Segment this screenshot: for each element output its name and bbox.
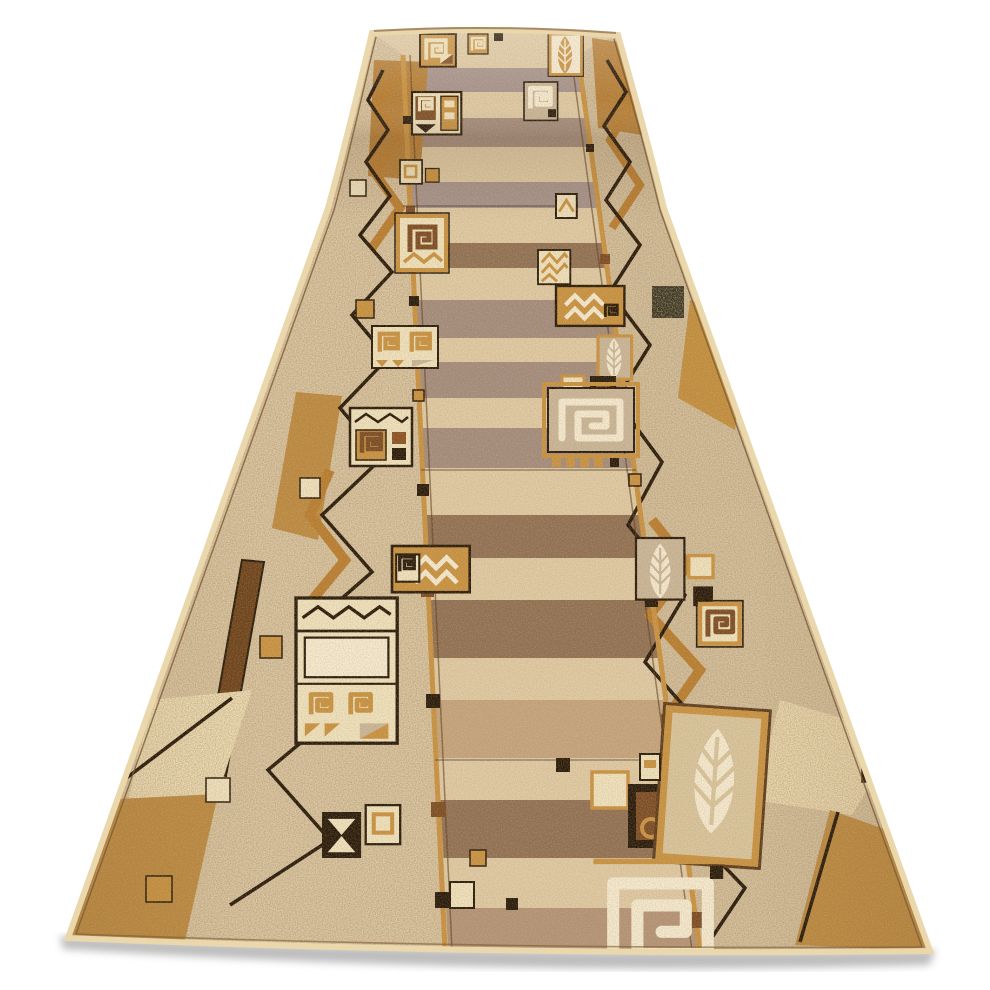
carpet-runner-image [0, 0, 990, 990]
product-photo [0, 0, 990, 990]
page-background [0, 0, 990, 990]
carpet-body [0, 0, 990, 990]
